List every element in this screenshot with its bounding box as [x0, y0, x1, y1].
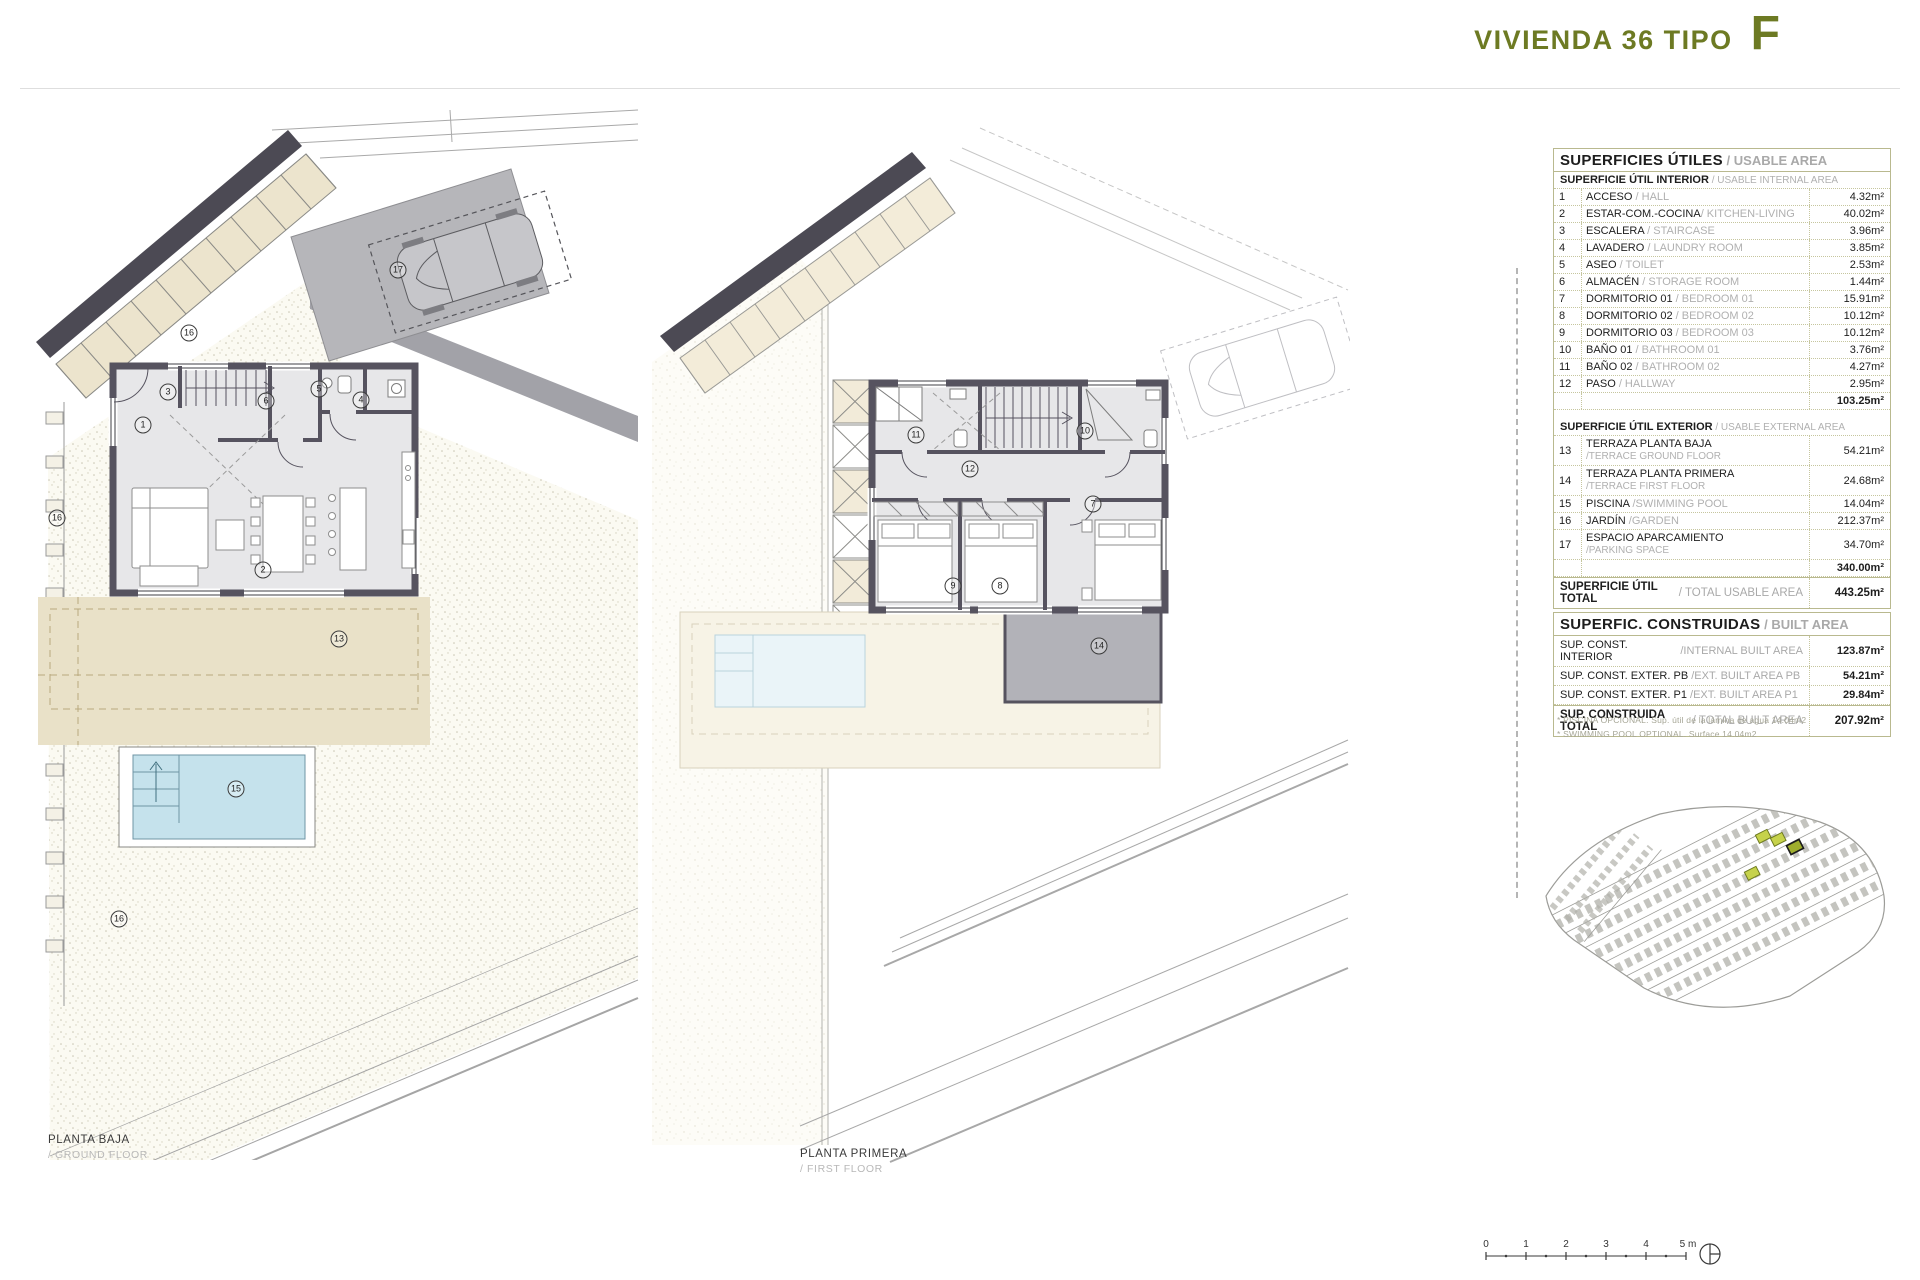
table-row: 14 TERRAZA PLANTA PRIMERA/TERRACE FIRST …: [1554, 466, 1890, 496]
scale-bar: 0 1 2 3 4 5 m: [1476, 1234, 1726, 1268]
swimming-pool: [119, 747, 315, 847]
row-value: 54.21m²: [1809, 436, 1890, 465]
usable-total-label-es: SUPERFICIE ÚTIL TOTAL: [1560, 581, 1676, 605]
row-value: 1.44m²: [1809, 274, 1890, 290]
scale-tick-5: 5 m: [1680, 1239, 1697, 1250]
usable-exterior-header-en: / USABLE EXTERNAL AREA: [1713, 422, 1845, 433]
first-floor-label: PLANTA PRIMERA / FIRST FLOOR: [800, 1148, 907, 1175]
row-label: PASO / HALLWAY: [1582, 376, 1809, 392]
table-row: 13 TERRAZA PLANTA BAJA/TERRACE GROUND FL…: [1554, 436, 1890, 466]
usable-area-title-en: / USABLE AREA: [1723, 153, 1827, 168]
ghost-neighbor-lines: [950, 128, 1348, 310]
row-label: TERRAZA PLANTA PRIMERA/TERRACE FIRST FLO…: [1582, 466, 1809, 495]
usable-interior-header-en: / USABLE INTERNAL AREA: [1709, 175, 1838, 186]
usable-total-value: 443.25m²: [1809, 578, 1890, 608]
ground-floor-label-en: / GROUND FLOOR: [48, 1149, 148, 1161]
built-area-title-en: / BUILT AREA: [1760, 617, 1848, 632]
table-row: SUP. CONST. EXTER. P1 /EXT. BUILT AREA P…: [1554, 686, 1890, 705]
beds: [878, 520, 1161, 602]
row-label: DORMITORIO 03 / BEDROOM 03: [1582, 325, 1809, 341]
room-marker-hallway: 12: [962, 461, 979, 478]
row-value: 4.32m²: [1809, 189, 1890, 205]
scale-tick-4: 4: [1643, 1239, 1649, 1250]
interior-subtotal-value: 103.25m²: [1809, 393, 1890, 409]
row-number: 5: [1554, 257, 1582, 273]
row-value: 2.53m²: [1809, 257, 1890, 273]
usable-area-title-es: SUPERFICIES ÚTILES: [1560, 152, 1723, 169]
plot-boundary-dashed-line: [1516, 268, 1518, 898]
row-number: 1: [1554, 189, 1582, 205]
row-number: 2: [1554, 206, 1582, 222]
ghost-car-icon: [1161, 297, 1350, 439]
row-label: ALMACÉN / STORAGE ROOM: [1582, 274, 1809, 290]
room-marker-bathroom-01: 10: [1077, 423, 1094, 440]
title-text: VIVIENDA 36 TIPO: [1474, 25, 1733, 56]
scale-tick-3: 3: [1603, 1239, 1609, 1250]
row-label: ASEO / TOILET: [1582, 257, 1809, 273]
row-number: 14: [1554, 466, 1582, 495]
row-label: SUP. CONST. INTERIOR/INTERNAL BUILT AREA: [1554, 636, 1809, 666]
row-number: 4: [1554, 240, 1582, 256]
scale-tick-1: 1: [1523, 1239, 1529, 1250]
first-floor-label-en: / FIRST FLOOR: [800, 1163, 907, 1175]
row-label: LAVADERO / LAUNDRY ROOM: [1582, 240, 1809, 256]
usable-exterior-rows: 13 TERRAZA PLANTA BAJA/TERRACE GROUND FL…: [1554, 436, 1890, 560]
row-value: 34.70m²: [1809, 530, 1890, 559]
room-marker-bedroom-01: 7: [1085, 496, 1102, 513]
built-area-rows: SUP. CONST. INTERIOR/INTERNAL BUILT AREA…: [1554, 636, 1890, 705]
table-row: SUP. CONST. INTERIOR/INTERNAL BUILT AREA…: [1554, 636, 1890, 667]
page-title: VIVIENDA 36 TIPO F: [1180, 10, 1780, 58]
row-value: 3.76m²: [1809, 342, 1890, 358]
table-gap: [1554, 410, 1890, 419]
table-row: 3 ESCALERA / STAIRCASE 3.96m²: [1554, 223, 1890, 240]
room-marker-staircase: 3: [160, 384, 177, 401]
room-marker-garden-left: 16: [49, 510, 66, 527]
row-value: 24.68m²: [1809, 466, 1890, 495]
table-row: 1 ACCESO / HALL 4.32m²: [1554, 189, 1890, 206]
usable-exterior-header-es: SUPERFICIE ÚTIL EXTERIOR: [1560, 421, 1713, 433]
room-marker-garden-bottom: 16: [111, 911, 128, 928]
footnote-en: * SWIMMING POOL OPTIONAL. Surface 14.04m…: [1557, 728, 1806, 742]
room-marker-toilet: 5: [311, 381, 328, 398]
table-row: SUP. CONST. EXTER. PB /EXT. BUILT AREA P…: [1554, 667, 1890, 686]
row-label: ESTAR-COM.-COCINA/ KITCHEN-LIVING: [1582, 206, 1809, 222]
row-value: 212.37m²: [1809, 513, 1890, 529]
table-row: 12 PASO / HALLWAY 2.95m²: [1554, 376, 1890, 393]
unit-type-letter: F: [1751, 10, 1780, 58]
neighbor-building-outline: [272, 110, 638, 158]
built-total-value: 207.92m²: [1809, 706, 1890, 736]
row-label: DORMITORIO 02 / BEDROOM 02: [1582, 308, 1809, 324]
row-number: 6: [1554, 274, 1582, 290]
room-marker-garden-top: 16: [181, 325, 198, 342]
row-value: 10.12m²: [1809, 325, 1890, 341]
row-value: 10.12m²: [1809, 308, 1890, 324]
row-value: 2.95m²: [1809, 376, 1890, 392]
room-marker-terrace-first: 14: [1091, 638, 1108, 655]
row-number: 11: [1554, 359, 1582, 375]
row-label: BAÑO 02 / BATHROOM 02: [1582, 359, 1809, 375]
room-marker-bedroom-03: 9: [945, 578, 962, 595]
row-value: 123.87m²: [1809, 636, 1890, 666]
room-marker-storage: 6: [258, 393, 275, 410]
row-number: 15: [1554, 496, 1582, 512]
row-number: 9: [1554, 325, 1582, 341]
parking-area: [291, 169, 571, 361]
table-row: 4 LAVADERO / LAUNDRY ROOM 3.85m²: [1554, 240, 1890, 257]
usable-interior-header-es: SUPERFICIE ÚTIL INTERIOR: [1560, 174, 1709, 186]
room-marker-terrace-ground: 13: [331, 631, 348, 648]
first-floor-label-es: PLANTA PRIMERA: [800, 1148, 907, 1160]
room-marker-parking-space: 17: [390, 262, 407, 279]
row-value: 14.04m²: [1809, 496, 1890, 512]
north-compass-icon: [1700, 1244, 1720, 1264]
room-marker-kitchen-living: 2: [255, 562, 272, 579]
row-label: ESPACIO APARCAMIENTO/PARKING SPACE: [1582, 530, 1809, 559]
table-row: 6 ALMACÉN / STORAGE ROOM 1.44m²: [1554, 274, 1890, 291]
first-floor-plan-drawing: [650, 100, 1350, 1180]
row-value: 40.02m²: [1809, 206, 1890, 222]
usable-interior-rows: 1 ACCESO / HALL 4.32m² 2 ESTAR-COM.-COCI…: [1554, 189, 1890, 393]
row-number: 7: [1554, 291, 1582, 307]
row-label: SUP. CONST. EXTER. P1 /EXT. BUILT AREA P…: [1554, 686, 1809, 704]
row-label: SUP. CONST. EXTER. PB /EXT. BUILT AREA P…: [1554, 667, 1809, 685]
scale-tick-2: 2: [1563, 1239, 1569, 1250]
row-value: 4.27m²: [1809, 359, 1890, 375]
row-value: 3.96m²: [1809, 223, 1890, 239]
built-area-title-es: SUPERFIC. CONSTRUIDAS: [1560, 616, 1760, 633]
row-label: BAÑO 01 / BATHROOM 01: [1582, 342, 1809, 358]
usable-area-header: SUPERFICIES ÚTILES / USABLE AREA: [1554, 149, 1890, 172]
ground-floor-label-es: PLANTA BAJA: [48, 1134, 148, 1146]
room-marker-bathroom-02: 11: [908, 427, 925, 444]
row-value: 15.91m²: [1809, 291, 1890, 307]
footnote-es: * PISCINA OPCIONAL. Sup. útil de la lámi…: [1557, 714, 1806, 728]
row-value: 54.21m²: [1809, 667, 1890, 685]
table-row: 8 DORMITORIO 02 / BEDROOM 02 10.12m²: [1554, 308, 1890, 325]
table-row: 10 BAÑO 01 / BATHROOM 01 3.76m²: [1554, 342, 1890, 359]
table-row: 15 PISCINA /SWIMMING POOL 14.04m²: [1554, 496, 1890, 513]
row-label: DORMITORIO 01 / BEDROOM 01: [1582, 291, 1809, 307]
row-value: 29.84m²: [1809, 686, 1890, 704]
row-number: 8: [1554, 308, 1582, 324]
table-row: 17 ESPACIO APARCAMIENTO/PARKING SPACE 34…: [1554, 530, 1890, 560]
row-label: ACCESO / HALL: [1582, 189, 1809, 205]
row-label: JARDÍN /GARDEN: [1582, 513, 1809, 529]
terrace-ground: [38, 597, 430, 745]
table-row: 2 ESTAR-COM.-COCINA/ KITCHEN-LIVING 40.0…: [1554, 206, 1890, 223]
row-number: 12: [1554, 376, 1582, 392]
table-row: 5 ASEO / TOILET 2.53m²: [1554, 257, 1890, 274]
table-row: 11 BAÑO 02 / BATHROOM 02 4.27m²: [1554, 359, 1890, 376]
room-marker-hall: 1: [135, 417, 152, 434]
row-value: 3.85m²: [1809, 240, 1890, 256]
ground-floor-label: PLANTA BAJA / GROUND FLOOR: [48, 1134, 148, 1161]
site-location-minimap: [1540, 800, 1895, 1020]
pool-ghost: [715, 635, 865, 707]
row-label: ESCALERA / STAIRCASE: [1582, 223, 1809, 239]
room-marker-laundry: 4: [353, 392, 370, 409]
interior-subtotal-row: 103.25m²: [1554, 393, 1890, 410]
table-row: 9 DORMITORIO 03 / BEDROOM 03 10.12m²: [1554, 325, 1890, 342]
usable-total-row: SUPERFICIE ÚTIL TOTAL / TOTAL USABLE ARE…: [1554, 577, 1890, 608]
ground-floor-plan-drawing: [20, 100, 640, 1160]
usable-area-table: SUPERFICIES ÚTILES / USABLE AREA SUPERFI…: [1553, 148, 1891, 609]
plan-sheet: VIVIENDA 36 TIPO F: [0, 0, 1920, 1280]
exterior-subtotal-value: 340.00m²: [1809, 560, 1890, 576]
usable-interior-header: SUPERFICIE ÚTIL INTERIOR / USABLE INTERN…: [1554, 172, 1890, 189]
usable-exterior-header: SUPERFICIE ÚTIL EXTERIOR / USABLE EXTERN…: [1554, 419, 1890, 436]
table-row: 16 JARDÍN /GARDEN 212.37m²: [1554, 513, 1890, 530]
header-rule: [20, 88, 1900, 89]
room-marker-pool: 15: [228, 781, 245, 798]
terrace-first-floor: [1005, 612, 1161, 702]
usable-total-label-en: / TOTAL USABLE AREA: [1676, 587, 1803, 599]
row-number: 13: [1554, 436, 1582, 465]
row-label: PISCINA /SWIMMING POOL: [1582, 496, 1809, 512]
row-label: TERRAZA PLANTA BAJA/TERRACE GROUND FLOOR: [1582, 436, 1809, 465]
table-row: 7 DORMITORIO 01 / BEDROOM 01 15.91m²: [1554, 291, 1890, 308]
site-paths-first: [800, 740, 1348, 1162]
room-marker-bedroom-02: 8: [992, 578, 1009, 595]
house-first-floor: [868, 379, 1170, 615]
row-number: 3: [1554, 223, 1582, 239]
scale-tick-0: 0: [1483, 1239, 1489, 1250]
exterior-subtotal-row: 340.00m²: [1554, 560, 1890, 577]
pool-optional-footnote: * PISCINA OPCIONAL. Sup. útil de la lámi…: [1557, 714, 1806, 741]
row-number: 17: [1554, 530, 1582, 559]
row-number: 10: [1554, 342, 1582, 358]
row-number: 16: [1554, 513, 1582, 529]
built-area-header: SUPERFIC. CONSTRUIDAS / BUILT AREA: [1554, 613, 1890, 636]
